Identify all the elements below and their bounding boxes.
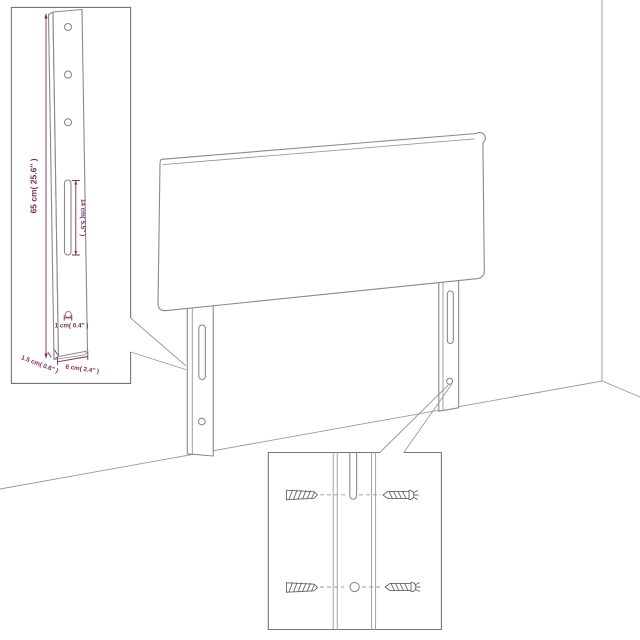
hardware-detail-inset xyxy=(268,453,441,630)
floor-line-left xyxy=(0,381,602,489)
leg-dimensions-inset: 65 cm( 25.6″ ) 14 cm( 5.5″ ) 1 cm( 0.4″ … xyxy=(11,7,130,383)
screw-icon xyxy=(383,490,418,499)
slot-closeup xyxy=(350,453,357,500)
leg-right-edge-lines xyxy=(372,453,376,630)
headboard-panel xyxy=(158,133,485,311)
headboard-left-leg xyxy=(187,296,213,456)
headboard-right-leg xyxy=(439,270,459,411)
height-dimension-label: 65 cm( 25.6″ ) xyxy=(29,158,39,213)
hole-closeup xyxy=(350,582,359,591)
floor-line-right xyxy=(602,381,640,397)
thickness-dimension-label: 1.5 cm( 0.6″ ) xyxy=(20,354,59,375)
leg-closeup xyxy=(333,453,375,630)
dimension-height: 65 cm( 25.6″ ) xyxy=(29,13,48,359)
width-dimension-label: 6 cm( 2.4″ ) xyxy=(65,363,99,375)
screw-icon xyxy=(385,582,420,591)
callout-line xyxy=(131,318,186,366)
pilot-hole-dimension-label: 1 cm( 0.4″ ) xyxy=(55,323,89,330)
diagram-canvas: 65 cm( 25.6″ ) 14 cm( 5.5″ ) 1 cm( 0.4″ … xyxy=(0,0,640,640)
inset-border xyxy=(268,453,441,630)
leg-post-front-face xyxy=(53,10,88,357)
callout-line xyxy=(131,352,186,370)
leg-left-edge-lines xyxy=(333,453,337,630)
headboard-diagram: 65 cm( 25.6″ ) 14 cm( 5.5″ ) 1 cm( 0.4″ … xyxy=(0,0,640,640)
wall-plug-icon xyxy=(287,490,318,500)
callout-line xyxy=(404,385,451,453)
panel-face xyxy=(158,133,485,311)
dimension-thickness: 1.5 cm( 0.6″ ) xyxy=(20,350,59,375)
wall-plug-icon xyxy=(287,583,318,593)
hardware-row-top xyxy=(287,490,419,500)
slot-dimension-label: 14 cm( 5.5″ ) xyxy=(79,199,86,236)
callout-wedge-left xyxy=(131,318,186,370)
left-leg-body xyxy=(187,296,213,456)
leg-post-drawing xyxy=(49,10,89,360)
